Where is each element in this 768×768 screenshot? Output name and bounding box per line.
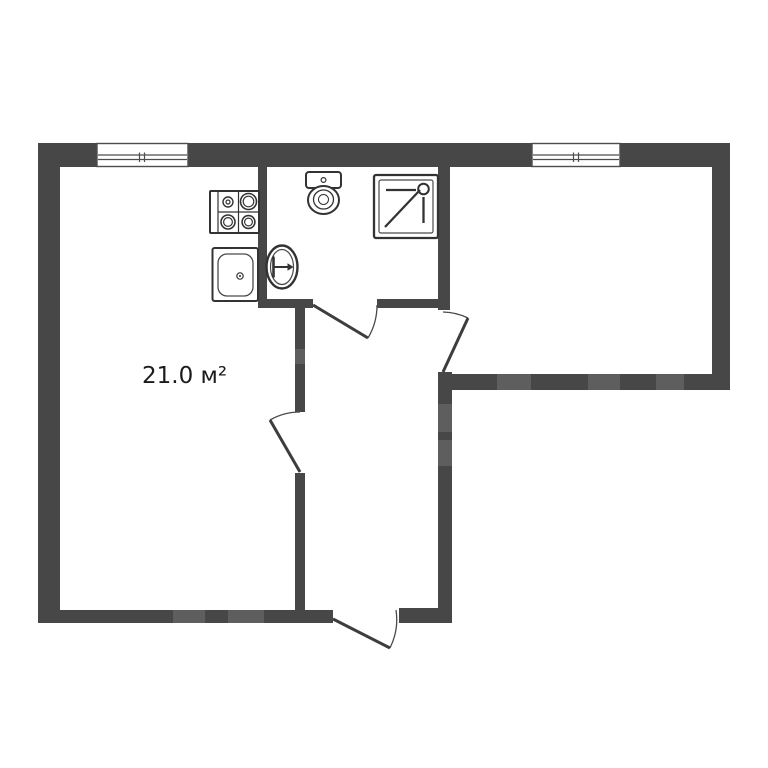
window-left-icon xyxy=(97,144,188,167)
wall-bathroom-right xyxy=(438,167,450,310)
wall-left xyxy=(38,167,60,623)
floor-plan-drawing: 21.0 м² xyxy=(0,0,768,768)
floor-plan: 21.0 м² xyxy=(0,0,768,768)
wall-patch xyxy=(656,374,684,390)
wall-patch xyxy=(228,610,264,623)
area-label: 21.0 м² xyxy=(142,363,227,389)
door-leaf xyxy=(313,305,368,338)
wall-right xyxy=(712,167,730,390)
stove-icon xyxy=(210,191,259,233)
wall-bathroom-bottom-right xyxy=(377,299,450,308)
door-livingroom xyxy=(270,412,300,472)
door-leaf xyxy=(443,318,468,372)
door-arc xyxy=(443,312,468,318)
window-right-icon xyxy=(532,144,620,167)
kitchen-sink-icon xyxy=(213,248,259,301)
wall-patch xyxy=(295,349,305,364)
door-arc xyxy=(390,610,397,648)
wall-patch xyxy=(173,610,205,623)
wall-bottom-right-stub xyxy=(399,608,438,623)
wall-patch xyxy=(497,374,531,390)
wall-patch xyxy=(438,440,452,466)
wall-hallway-left-lower xyxy=(295,473,305,610)
toilet-icon xyxy=(306,172,341,214)
door-rightroom xyxy=(443,312,468,372)
washbasin-icon xyxy=(267,246,298,289)
wall-kitchen-divider xyxy=(258,167,267,308)
wall-light-patches xyxy=(173,349,684,623)
door-leaf xyxy=(333,619,390,648)
door-leaf xyxy=(270,420,300,472)
door-arc xyxy=(270,412,300,420)
wall-bathroom-bottom-left xyxy=(258,299,313,308)
wall-patch xyxy=(438,404,452,432)
door-bathroom xyxy=(313,305,377,338)
wall-patch xyxy=(588,374,620,390)
door-entrance xyxy=(333,610,397,648)
door-arc xyxy=(368,305,377,338)
shower-icon xyxy=(374,175,438,238)
